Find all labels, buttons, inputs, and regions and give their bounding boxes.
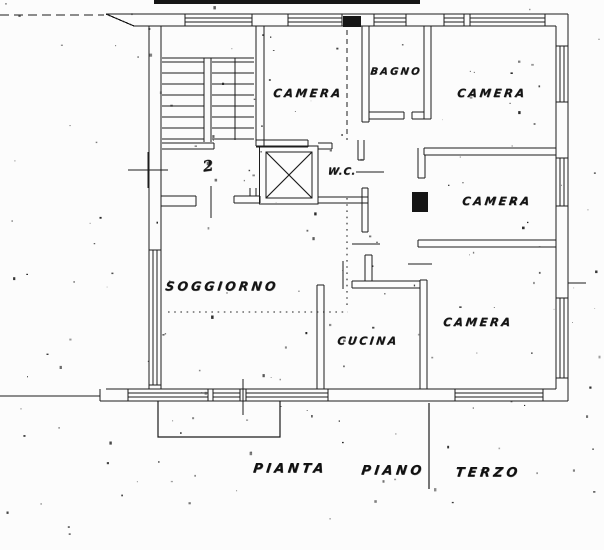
windows <box>128 14 586 415</box>
room-label-camera-mid-right: CAMERA <box>461 194 532 208</box>
reference-lines <box>0 15 104 396</box>
caption-word-pianta: PIANTA <box>252 462 327 477</box>
caption-word-terzo: TERZO <box>455 466 522 481</box>
room-label-soggiorno: SOGGIORNO <box>165 279 280 294</box>
staircase <box>162 58 254 142</box>
caption-word-piano: PIANO <box>360 464 425 479</box>
room-label-camera-bottom-right: CAMERA <box>442 315 513 329</box>
room-label-camera-top-left: CAMERA <box>272 86 343 100</box>
room-label-camera-top-right: CAMERA <box>456 86 527 100</box>
balcony <box>158 401 280 437</box>
room-label-bagno: BAGNO <box>370 67 423 78</box>
room-label-wc: W.C. <box>327 167 357 178</box>
elevator <box>260 146 319 204</box>
room-label-cucina: CUCINA <box>336 335 399 348</box>
scanned-floor-plan-page: CAMERA BAGNO CAMERA CAMERA W.C. SOGGIORN… <box>0 0 604 550</box>
scan-artifact-bar <box>154 0 420 4</box>
dashed-lines <box>168 30 348 312</box>
scan-noise <box>5 0 600 534</box>
